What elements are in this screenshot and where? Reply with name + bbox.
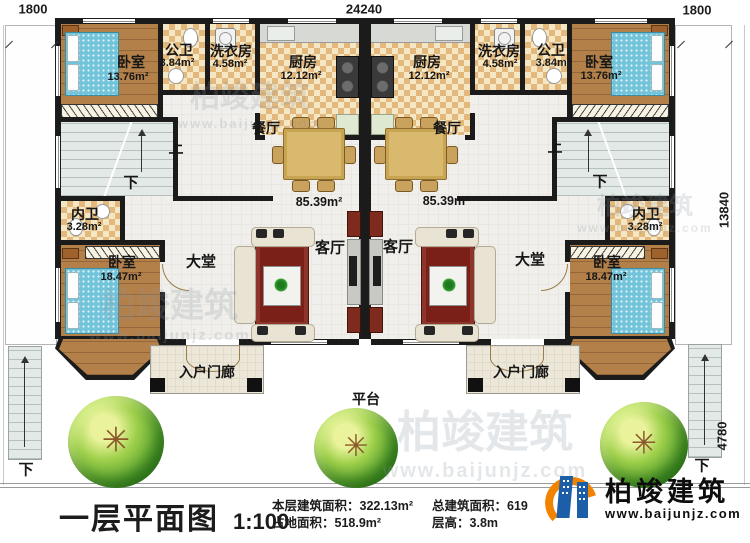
interior-stairs (61, 122, 173, 196)
pillow (67, 64, 79, 91)
stair-down-label: 下 (592, 171, 607, 192)
pillow (651, 302, 663, 329)
wall (605, 196, 610, 245)
open-area-label: 85.39m² (423, 194, 470, 208)
dimension-top-left: 1800 (19, 2, 48, 17)
porch-post (565, 378, 580, 392)
stat-value: 322.13m² (360, 499, 414, 513)
wall (552, 117, 675, 122)
stat-value: 518.9m² (335, 516, 382, 530)
stat-line: 总建筑面积：619 (432, 498, 528, 515)
dimension-right-lower: 4780 (715, 422, 730, 451)
dimension-right-upper: 13840 (717, 192, 732, 228)
tree-icon (68, 396, 164, 488)
pillow (67, 302, 79, 329)
room-label-living: 客厅 (383, 236, 413, 257)
window (213, 19, 249, 23)
cabinet (369, 307, 383, 333)
logo-name: 柏竣建筑 (605, 478, 741, 506)
logo-building-icon (541, 466, 599, 533)
window (56, 46, 60, 96)
room-label-bedroom-main: 卧室 (593, 252, 621, 272)
wall (567, 18, 572, 120)
stair-up-label: 上 (547, 136, 562, 157)
room-label-living: 客厅 (315, 237, 345, 258)
tv-icon (373, 256, 381, 286)
wall (120, 196, 125, 245)
logo-url: www.baijunjz.com (605, 506, 741, 521)
window (670, 46, 674, 96)
terrace-left (5, 25, 57, 345)
room-label-dining: 餐厅 (252, 118, 280, 138)
room-area: 3.28m² (628, 221, 663, 233)
wall (465, 135, 470, 140)
window (288, 19, 336, 23)
room-label-hall: 大堂 (186, 251, 216, 272)
platform-label: 平台 (352, 389, 380, 409)
bay-window-floor (569, 339, 671, 375)
floor-plan-canvas: 柏竣建筑 www.baijunjz.com 柏竣建筑 www.baijunjz.… (0, 0, 750, 543)
room-label-dining: 餐厅 (433, 118, 461, 138)
plant-icon (274, 278, 288, 292)
room-label-bedroom: 卧室 (585, 52, 613, 72)
stair-down-label: 下 (18, 459, 33, 480)
room-area: 12.12m² (409, 70, 450, 82)
wall (470, 18, 475, 95)
cushion (424, 326, 435, 335)
stat-label: 本层建筑面积： (272, 499, 360, 513)
wall (55, 196, 125, 201)
pillow (67, 35, 79, 62)
room-area: 18.47m² (101, 271, 142, 283)
stair-down-label: 下 (123, 172, 138, 193)
drawing-title-row: 一层平面图 1:100 (55, 494, 299, 543)
room-area: 4.58m² (483, 58, 518, 70)
wall (470, 113, 475, 140)
chair (272, 146, 284, 164)
tree-icon (314, 408, 398, 488)
cushion (257, 326, 268, 335)
window (481, 19, 517, 23)
window (56, 136, 60, 188)
stair-up-label: 上 (168, 137, 183, 158)
wall (470, 90, 572, 95)
stair-arrow (704, 357, 705, 445)
room-area: 13.76m² (108, 71, 149, 83)
terrace-right (675, 25, 732, 345)
dimension-top-right: 1800 (683, 3, 712, 18)
wall (520, 18, 525, 95)
wall (565, 240, 675, 245)
wall (55, 117, 178, 122)
kitchen-sink (267, 26, 295, 41)
stair-arrow (24, 359, 25, 447)
sofa (234, 246, 256, 324)
porch-post (150, 378, 165, 392)
nightstand (651, 248, 668, 259)
cushion (256, 229, 267, 238)
chair (317, 180, 335, 192)
pillow (67, 272, 79, 299)
window (595, 19, 647, 23)
wall (173, 117, 178, 201)
chair (395, 180, 413, 192)
wall (178, 196, 273, 201)
porch-label: 入户门廊 (493, 362, 549, 382)
kitchen-sink (435, 26, 463, 41)
cabinet (369, 211, 383, 237)
cushion (463, 229, 474, 238)
cushion (273, 229, 284, 238)
wall (160, 292, 165, 339)
window (670, 268, 674, 322)
room-label-bedroom-main: 卧室 (108, 252, 136, 272)
chair (374, 146, 386, 164)
stove-icon (371, 56, 394, 98)
stats-column-1: 本层建筑面积：322.13m² 占地面积：518.9m² (272, 498, 413, 532)
stair-arrow (588, 132, 589, 172)
room-label-kitchen: 厨房 (413, 52, 441, 72)
window (56, 268, 60, 322)
stat-value: 3.8m (470, 516, 499, 530)
stat-label: 总建筑面积： (432, 499, 507, 513)
room-area: 3.84m² (160, 57, 195, 69)
pillow (651, 272, 663, 299)
stat-line: 本层建筑面积：322.13m² (272, 498, 413, 515)
chair (446, 146, 458, 164)
stove-icon (336, 56, 359, 98)
cushion (295, 326, 306, 335)
porch-post (247, 378, 262, 392)
wall (55, 240, 165, 245)
room-area: 3.28m² (67, 221, 102, 233)
wall (552, 117, 557, 201)
wall (457, 196, 552, 201)
stats-column-2: 总建筑面积：619 层高：3.8m (432, 498, 528, 532)
dining-table (283, 128, 345, 180)
chair (344, 146, 356, 164)
window (83, 19, 135, 23)
site-edge-right (744, 25, 745, 485)
tv-icon (349, 256, 357, 286)
stat-line: 层高：3.8m (432, 515, 528, 532)
company-logo: 柏竣建筑 www.baijunjz.com (541, 466, 741, 533)
open-area-label: 85.39m² (296, 195, 343, 209)
plant-icon (442, 278, 456, 292)
pillow (651, 35, 663, 62)
room-area: 12.12m² (281, 70, 322, 82)
wall (605, 196, 675, 201)
logo-text: 柏竣建筑 www.baijunjz.com (605, 478, 741, 521)
site-edge-left (3, 25, 4, 485)
window (394, 19, 442, 23)
cabinet (347, 211, 361, 237)
wall (565, 292, 570, 339)
wall (158, 90, 260, 95)
room-area: 13.76m² (581, 70, 622, 82)
watermark-name: 柏竣建筑 (397, 408, 573, 457)
porch-label: 入户门廊 (179, 362, 235, 382)
chair (420, 180, 438, 192)
room-area: 4.58m² (213, 58, 248, 70)
chair (292, 180, 310, 192)
stat-label: 占地面积： (272, 516, 335, 530)
stat-label: 层高： (432, 516, 470, 530)
drawing-title: 一层平面图 (59, 494, 219, 538)
wardrobe (572, 104, 669, 118)
room-label-kitchen: 厨房 (289, 52, 317, 72)
wall (565, 240, 570, 262)
stair-arrow (141, 132, 142, 172)
cabinet (347, 307, 361, 333)
room-area: 18.47m² (586, 271, 627, 283)
sink-icon (546, 68, 562, 84)
cushion (462, 326, 473, 335)
room-label-bedroom: 卧室 (117, 52, 145, 72)
wall (255, 18, 260, 95)
bay-window-floor (59, 339, 161, 375)
room-area: 3.84m² (536, 57, 571, 69)
stat-line: 占地面积：518.9m² (272, 515, 413, 532)
exterior-stairs-left (8, 346, 42, 460)
wall (160, 240, 165, 262)
room-label-hall: 大堂 (515, 249, 545, 270)
wardrobe (61, 104, 158, 118)
sink-icon (168, 68, 184, 84)
dimension-top-center: 24240 (346, 2, 382, 17)
pillow (651, 64, 663, 91)
stat-value: 619 (507, 499, 528, 513)
nightstand (62, 248, 79, 259)
sofa (474, 246, 496, 324)
porch-post (468, 378, 483, 392)
window (670, 136, 674, 188)
interior-stairs (557, 122, 669, 196)
wall (158, 18, 163, 120)
cushion (446, 229, 457, 238)
